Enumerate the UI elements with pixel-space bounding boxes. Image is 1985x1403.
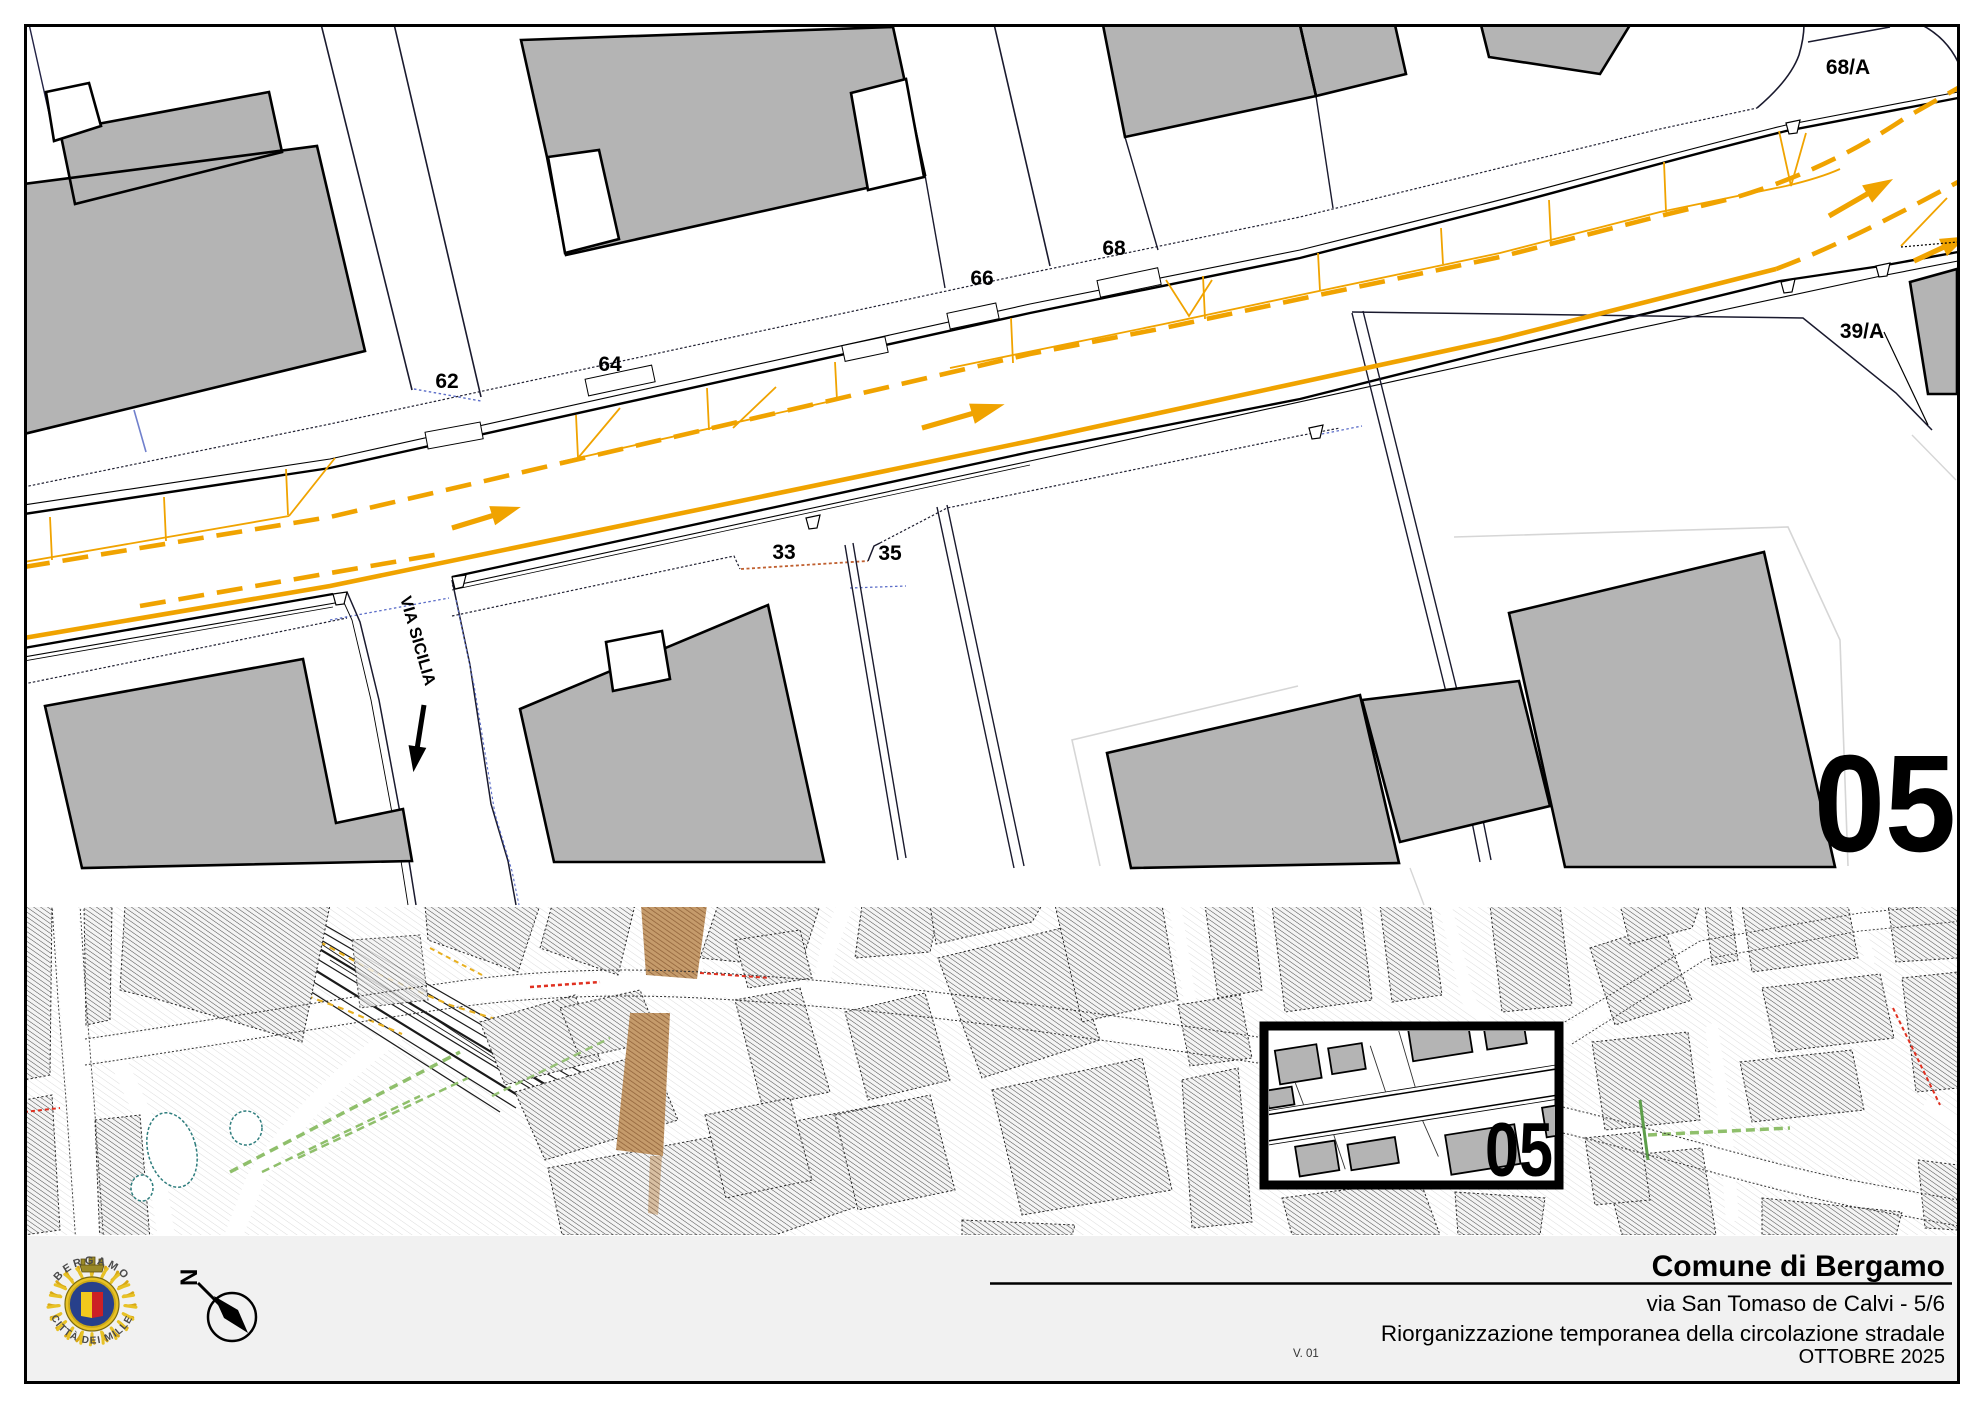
svg-text:68/A: 68/A bbox=[1826, 56, 1870, 79]
svg-text:N: N bbox=[176, 1269, 203, 1286]
svg-text:64: 64 bbox=[598, 353, 622, 376]
svg-text:OTTOBRE 2025: OTTOBRE 2025 bbox=[1799, 1346, 1945, 1368]
svg-text:V. 01: V. 01 bbox=[1293, 1348, 1319, 1360]
svg-text:35: 35 bbox=[878, 542, 902, 565]
svg-text:via San Tomaso de Calvi - 5/6: via San Tomaso de Calvi - 5/6 bbox=[1647, 1291, 1946, 1316]
svg-text:Riorganizzazione temporanea de: Riorganizzazione temporanea della circol… bbox=[1381, 1321, 1945, 1346]
svg-text:66: 66 bbox=[970, 267, 993, 290]
svg-text:68: 68 bbox=[1102, 237, 1126, 260]
svg-text:62: 62 bbox=[435, 370, 458, 393]
svg-text:39/A: 39/A bbox=[1840, 320, 1884, 343]
svg-text:33: 33 bbox=[772, 541, 795, 564]
svg-text:05: 05 bbox=[1814, 727, 1956, 881]
svg-text:Comune di Bergamo: Comune di Bergamo bbox=[1652, 1250, 1945, 1283]
